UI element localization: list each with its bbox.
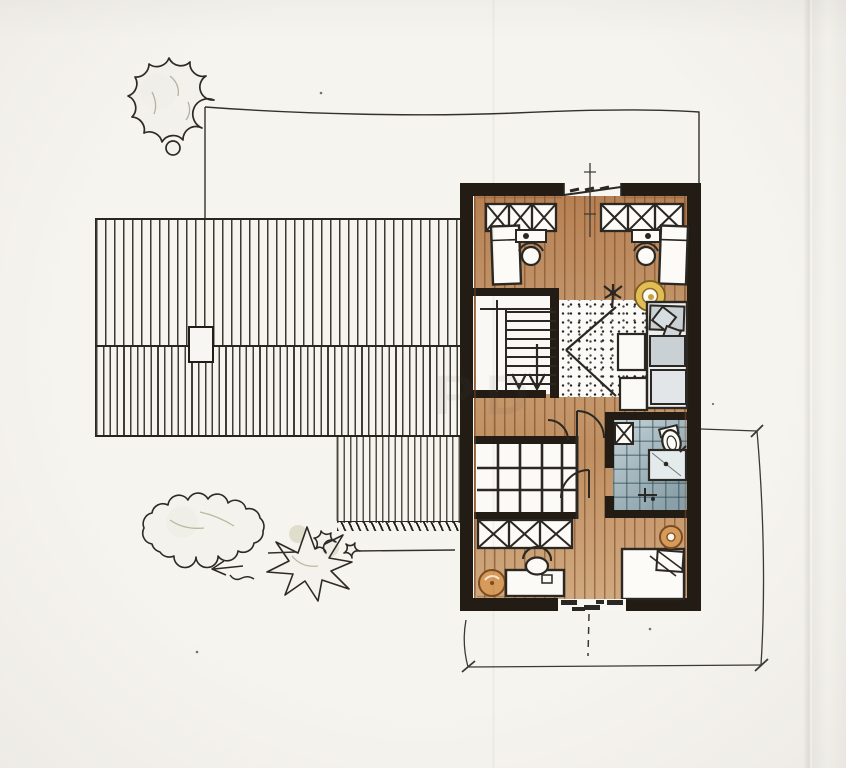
bed — [659, 226, 688, 285]
sofa-cushion-bottom — [651, 370, 686, 404]
door-arcs — [548, 411, 604, 498]
roof-eaves-ticks — [337, 521, 468, 531]
watermark: PD — [434, 362, 540, 427]
door-arc-void — [548, 420, 568, 440]
bush-large — [143, 493, 264, 567]
bed — [491, 226, 521, 285]
coffee-table-2 — [620, 378, 647, 410]
wall-north-right — [621, 183, 701, 196]
bush-small-2 — [344, 543, 360, 558]
wardrobe-north-left — [486, 204, 556, 231]
blanket-folds — [650, 551, 682, 576]
hanging-chair — [635, 281, 665, 311]
wall-bath-north — [605, 412, 695, 420]
stool-orange — [479, 570, 505, 596]
landing-sightlines — [566, 307, 616, 396]
stair-treads — [506, 312, 556, 384]
dim-line-right — [757, 431, 764, 665]
wall-west — [460, 183, 473, 611]
bush-group — [143, 437, 455, 601]
tree-canopy — [128, 58, 214, 142]
glazing-dashes — [570, 187, 609, 191]
terrace-edge-line — [268, 550, 455, 553]
glazed-void-floor — [476, 442, 576, 514]
wood-floor-north-shade — [474, 194, 694, 304]
desk — [516, 230, 546, 242]
bush-spiky — [267, 527, 352, 601]
bath-cabinet — [615, 423, 633, 444]
tree-tint — [140, 74, 176, 110]
stair-down-arrows — [512, 344, 545, 389]
paper-specks — [196, 92, 714, 654]
desk-item — [542, 575, 552, 583]
desk-chair-north-left — [516, 230, 546, 265]
paper-fold-center — [492, 0, 495, 768]
dim-line-bottom — [468, 665, 761, 667]
desk — [632, 230, 660, 242]
paper-right-margin — [812, 0, 846, 768]
sofa-cushion-mid — [650, 336, 685, 366]
roof-extension-hatch — [337, 437, 470, 523]
bush-small-1 — [314, 531, 336, 553]
threshold-steps — [561, 600, 623, 611]
wardrobe-south — [478, 520, 572, 548]
sketch-page: PD — [0, 0, 846, 768]
glazed-void-grid — [477, 436, 577, 519]
photo-vignette — [0, 0, 846, 768]
roof-lower-hatch-band — [95, 345, 470, 437]
ink-drawing — [0, 0, 846, 768]
roof-upper-hatch-band — [95, 218, 470, 345]
desk-item — [645, 233, 651, 239]
wardrobe-frame — [486, 204, 556, 231]
basin-fittings — [638, 488, 657, 502]
sofa-pillow-2 — [662, 326, 681, 345]
sofa-frame — [647, 302, 687, 408]
bed-pillow — [656, 550, 683, 572]
bush-inner-strokes — [170, 512, 318, 566]
shower-drain — [664, 462, 669, 467]
wardrobe-x-symbols — [479, 521, 571, 547]
dim-extension-right-top — [701, 429, 757, 431]
tree-inner-strokes — [152, 76, 190, 120]
axis-south-dashed — [588, 614, 589, 656]
coffee-table-1 — [618, 334, 645, 370]
chair-seat — [637, 247, 655, 265]
floor-plan-walls — [460, 183, 701, 611]
wall-south-right — [626, 598, 701, 611]
balcony-door — [558, 599, 626, 611]
glazing-line — [564, 187, 621, 195]
balcony-opening — [558, 599, 626, 611]
desk-chair-north-right — [632, 230, 660, 265]
wood-floor — [474, 194, 694, 606]
bed-south — [622, 549, 684, 599]
wardrobe-x-symbols — [487, 205, 555, 230]
door-arc-corridor — [577, 411, 604, 438]
wall-sepia-accents — [475, 198, 686, 597]
chair-south-back — [523, 547, 551, 561]
wardrobe-frame — [478, 520, 572, 548]
chimney — [188, 326, 214, 363]
bedroom-south-furniture — [479, 526, 684, 599]
sofa — [647, 302, 687, 408]
wall-stair-east — [550, 288, 559, 398]
bush-tint-3 — [321, 539, 339, 557]
coffee-tables — [618, 334, 647, 410]
wall-void-south — [474, 512, 578, 519]
bed-north-left — [491, 226, 521, 285]
arrow-scribble — [212, 561, 254, 579]
wall-north-left — [460, 183, 564, 196]
paper-fold-right — [803, 0, 814, 768]
stairs — [480, 300, 556, 392]
tree — [128, 58, 214, 155]
toilet — [659, 425, 683, 456]
wall-east — [687, 183, 701, 611]
ridge-window — [564, 183, 621, 196]
wall-stair-south — [470, 390, 546, 398]
wall-south-left — [460, 598, 558, 611]
shower — [649, 446, 686, 480]
wardrobe-x-symbols — [602, 205, 682, 230]
ridge-window-opening — [564, 184, 621, 196]
sofa-pillow-1 — [652, 307, 676, 331]
dim-extension-left — [464, 620, 468, 667]
dimension-lines — [462, 425, 768, 672]
wall-bath-west-lower — [605, 496, 614, 512]
pillow-line — [661, 240, 688, 241]
plant — [604, 284, 622, 308]
desk-south — [506, 570, 564, 596]
wall-bath-south — [605, 510, 695, 518]
chair-back — [634, 243, 658, 251]
wall-stair-north — [470, 288, 558, 296]
wall-bath-west-upper — [605, 412, 614, 468]
bush-tint-2 — [289, 525, 307, 543]
bed-north-right — [659, 226, 688, 285]
bathroom-tiles — [613, 420, 689, 512]
door-arc-bedroom-south — [561, 470, 589, 498]
chair-back — [519, 243, 543, 251]
site-boundary-lines — [205, 107, 699, 218]
sofa-cushion-top — [650, 305, 685, 330]
bathroom-fixtures — [615, 423, 686, 502]
chair-seat — [522, 247, 540, 265]
hanging-chair-ring — [635, 281, 665, 311]
tree-trunk-loop — [166, 141, 180, 155]
landing-dotted-rug — [559, 300, 646, 397]
wall-void-north — [474, 436, 578, 444]
chair-south-seat — [526, 558, 548, 575]
bush-tint-1 — [166, 506, 198, 538]
wardrobe-north-right — [601, 204, 683, 231]
boundary-line-north — [205, 107, 699, 189]
axis-lines — [584, 163, 596, 656]
dim-ticks — [462, 425, 768, 672]
stairwell-floor — [476, 294, 552, 394]
shower-head — [680, 446, 686, 452]
desk-item — [523, 233, 529, 239]
wardrobe-frame — [601, 204, 683, 231]
bedside-lamp-orange — [660, 526, 682, 548]
pillow-line — [491, 240, 519, 241]
